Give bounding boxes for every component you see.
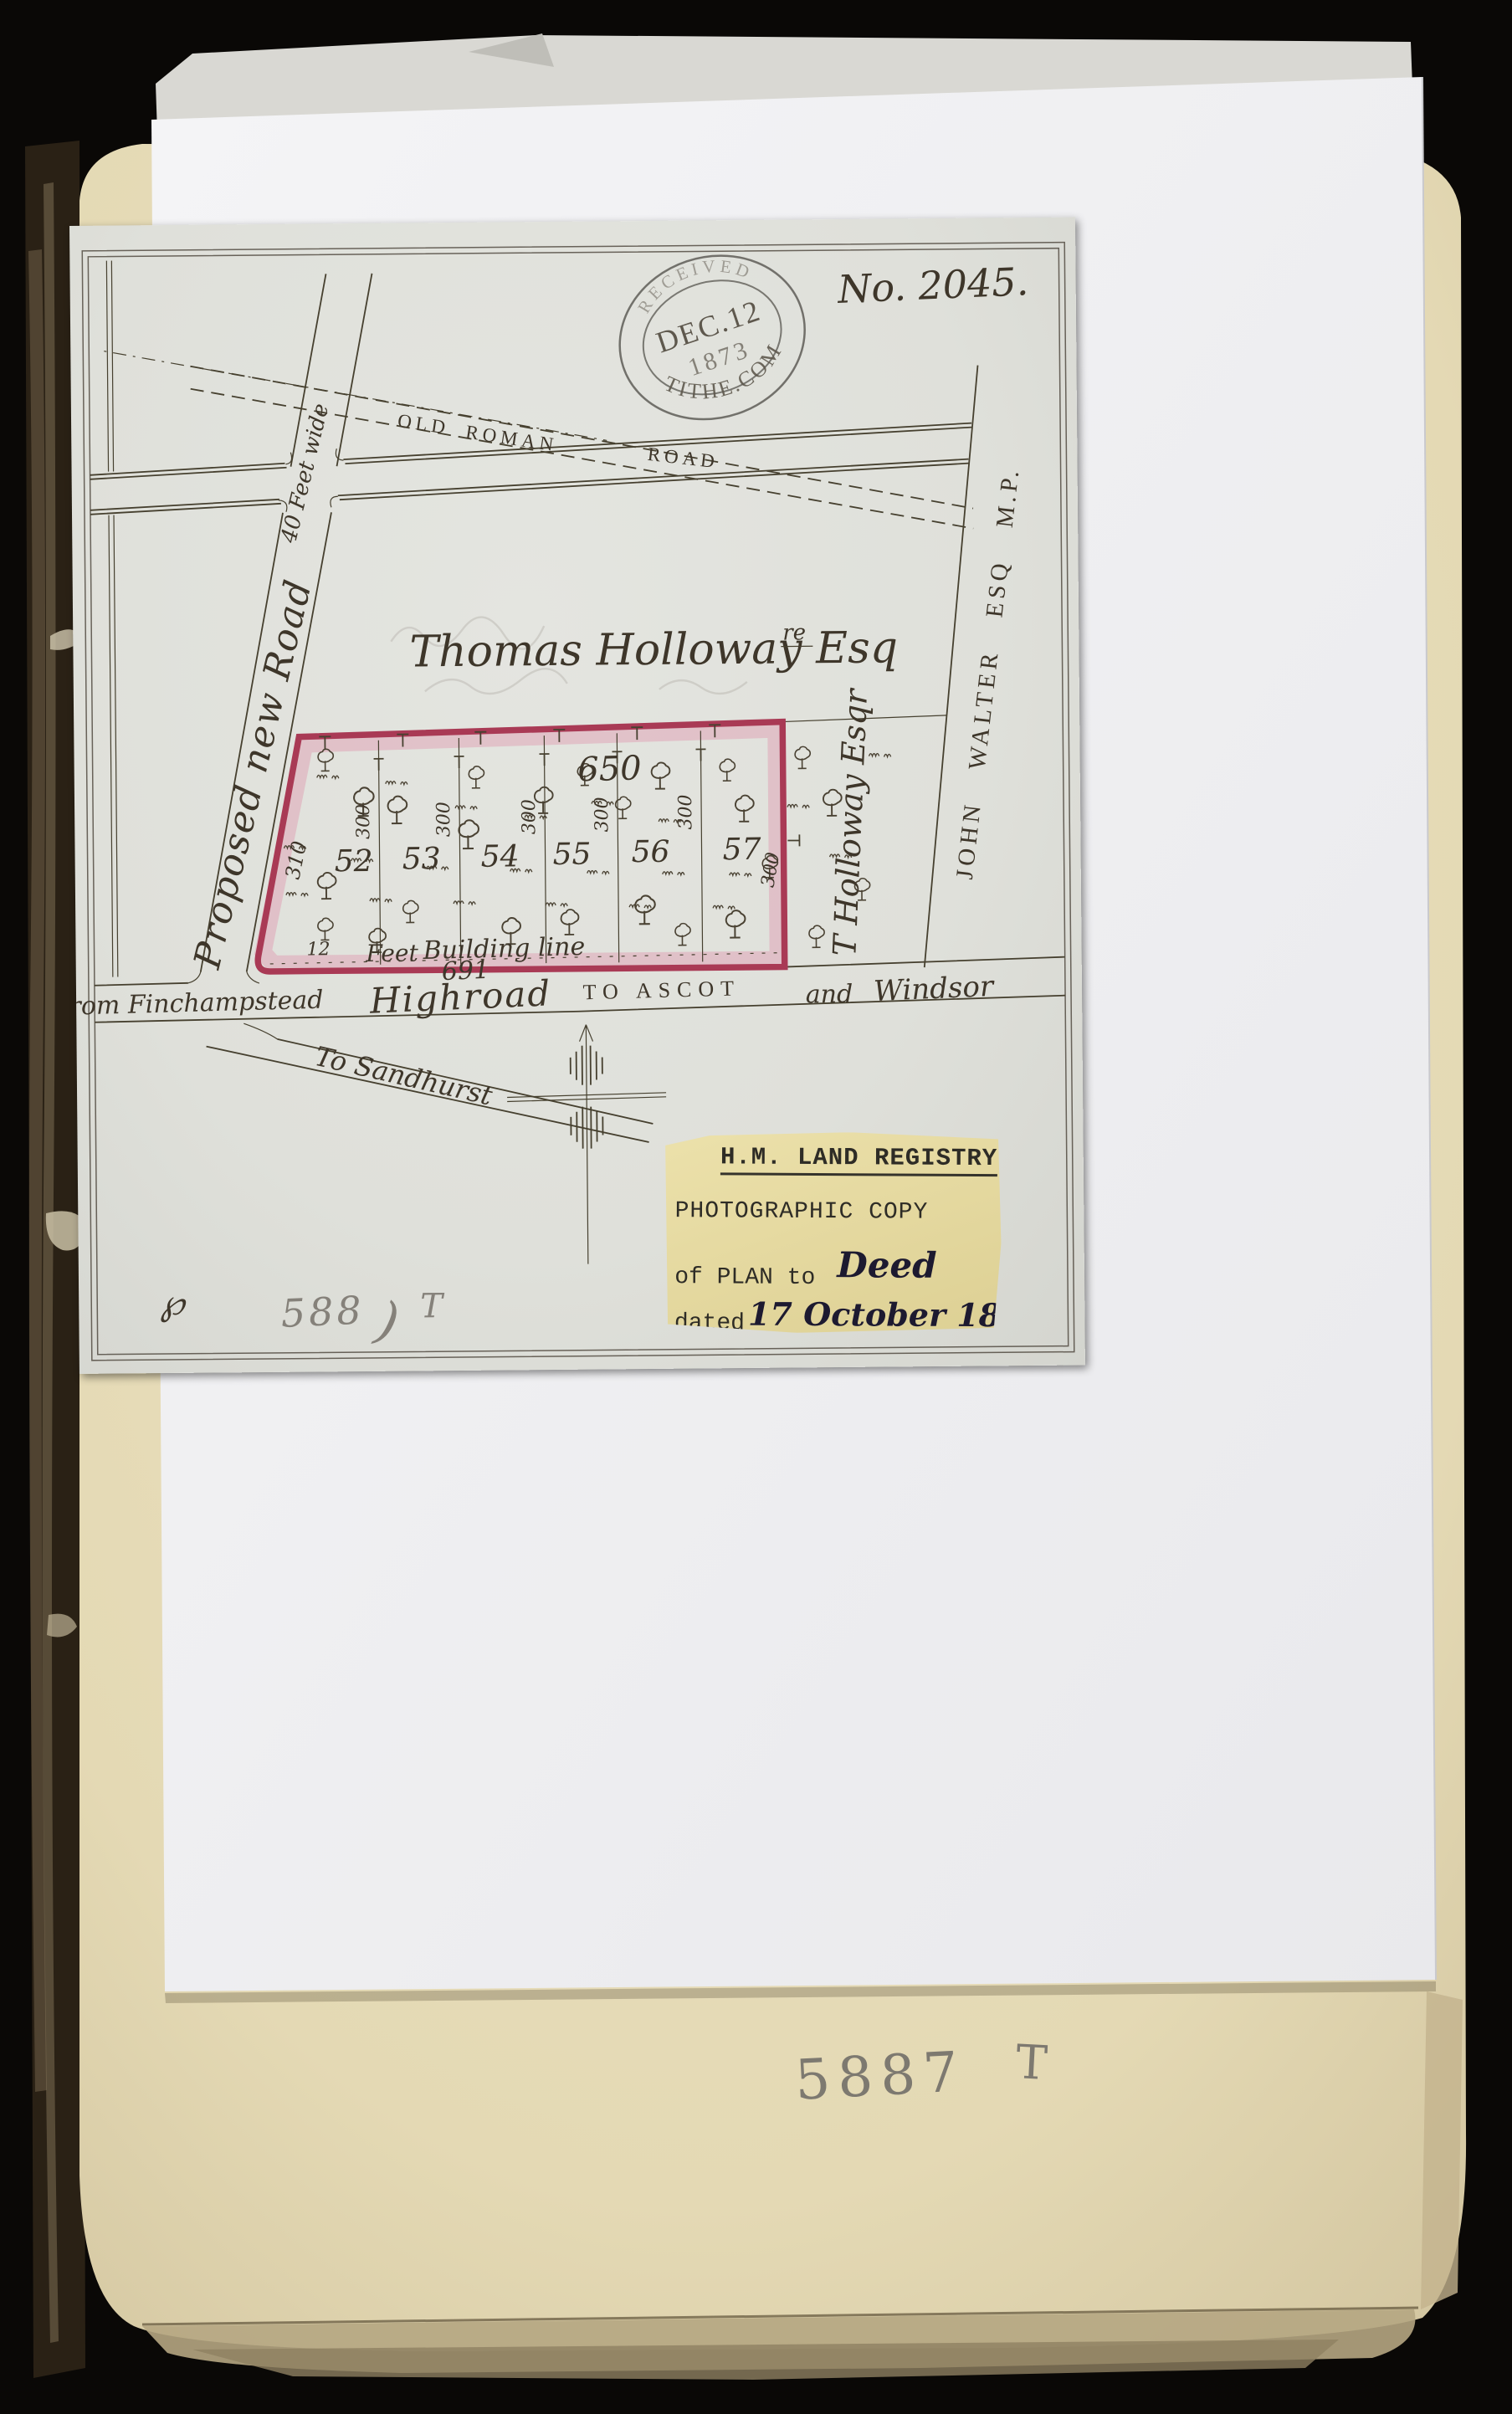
plan-ref-paren: ): [369, 1289, 405, 1353]
plot-number-53: 53: [402, 842, 441, 876]
deed-plan-sheet: RECEIVED DEC.12 1873 TITHE.COM No. 2045.…: [69, 218, 1085, 1374]
registry-line2: PHOTOGRAPHIC COPY: [675, 1198, 929, 1226]
plot-number-54: 54: [481, 839, 520, 874]
land-registry-label: H.M. LAND REGISTRY PHOTOGRAPHIC COPY of …: [661, 1131, 1002, 1334]
highroad-to-label: TO ASCOT: [582, 976, 741, 1004]
highroad-and-label: and: [806, 980, 853, 1009]
archive-photo: 5887 T: [0, 0, 1512, 2414]
owner-name-suffix: re: [782, 620, 806, 645]
page-ref-number: 5887: [793, 2039, 967, 2113]
neighbor-owner-label: JOHN WALTER ESQ M.P.: [951, 465, 1025, 881]
page-pencil-reference: 5887 T: [793, 2035, 1048, 2113]
plot-number-56: 56: [631, 835, 669, 869]
setback-feet: Feet: [365, 939, 418, 967]
plot-number-55: 55: [552, 838, 591, 872]
sandhurst-label: To Sandhurst: [312, 1040, 495, 1112]
building-line-label: Building line: [422, 932, 586, 966]
divider-depth-1: 300: [353, 804, 374, 839]
road-label-old: OLD: [397, 410, 451, 438]
plot-number-57: 57: [722, 833, 761, 867]
registry-deed-handwriting: Deed: [837, 1244, 936, 1286]
plan-ref-letter: T: [420, 1287, 445, 1325]
registry-line3: of PLAN toDeed: [674, 1250, 937, 1293]
parcel-owner-label: T Holloway Esqr: [826, 686, 874, 957]
ink-mark: ℘: [160, 1282, 187, 1323]
owner-name: Thomas Holloway Esq: [409, 623, 898, 677]
page-ref-letter: T: [1014, 2035, 1048, 2101]
plot-number-52: 52: [335, 844, 373, 879]
plan-ref-number: 588: [280, 1288, 366, 1336]
received-stamp: RECEIVED DEC.12 1873 TITHE.COM: [597, 231, 827, 443]
setback-number: 12: [306, 939, 330, 960]
plot-front-length: 650: [577, 749, 643, 789]
north-arrow: [506, 1024, 667, 1265]
divider-depth-4: 300: [592, 797, 612, 832]
registry-title: H.M. LAND REGISTRY: [720, 1143, 995, 1172]
plan-number: No. 2045.: [836, 259, 1029, 312]
divider-depth-3: 300: [519, 799, 540, 834]
divider-depth-2: 300: [433, 802, 454, 837]
registry-line3-typed: of PLAN to: [674, 1264, 815, 1291]
divider-depth-5: 300: [675, 794, 696, 829]
road-label-road: ROAD: [647, 443, 720, 472]
road-width-label: 40 Feet wide: [276, 401, 334, 546]
highroad-windsor-label: Windsor: [873, 970, 995, 1008]
highroad-label: Highroad: [368, 972, 552, 1021]
highroad-from-label: from Finchampstead: [69, 986, 324, 1022]
